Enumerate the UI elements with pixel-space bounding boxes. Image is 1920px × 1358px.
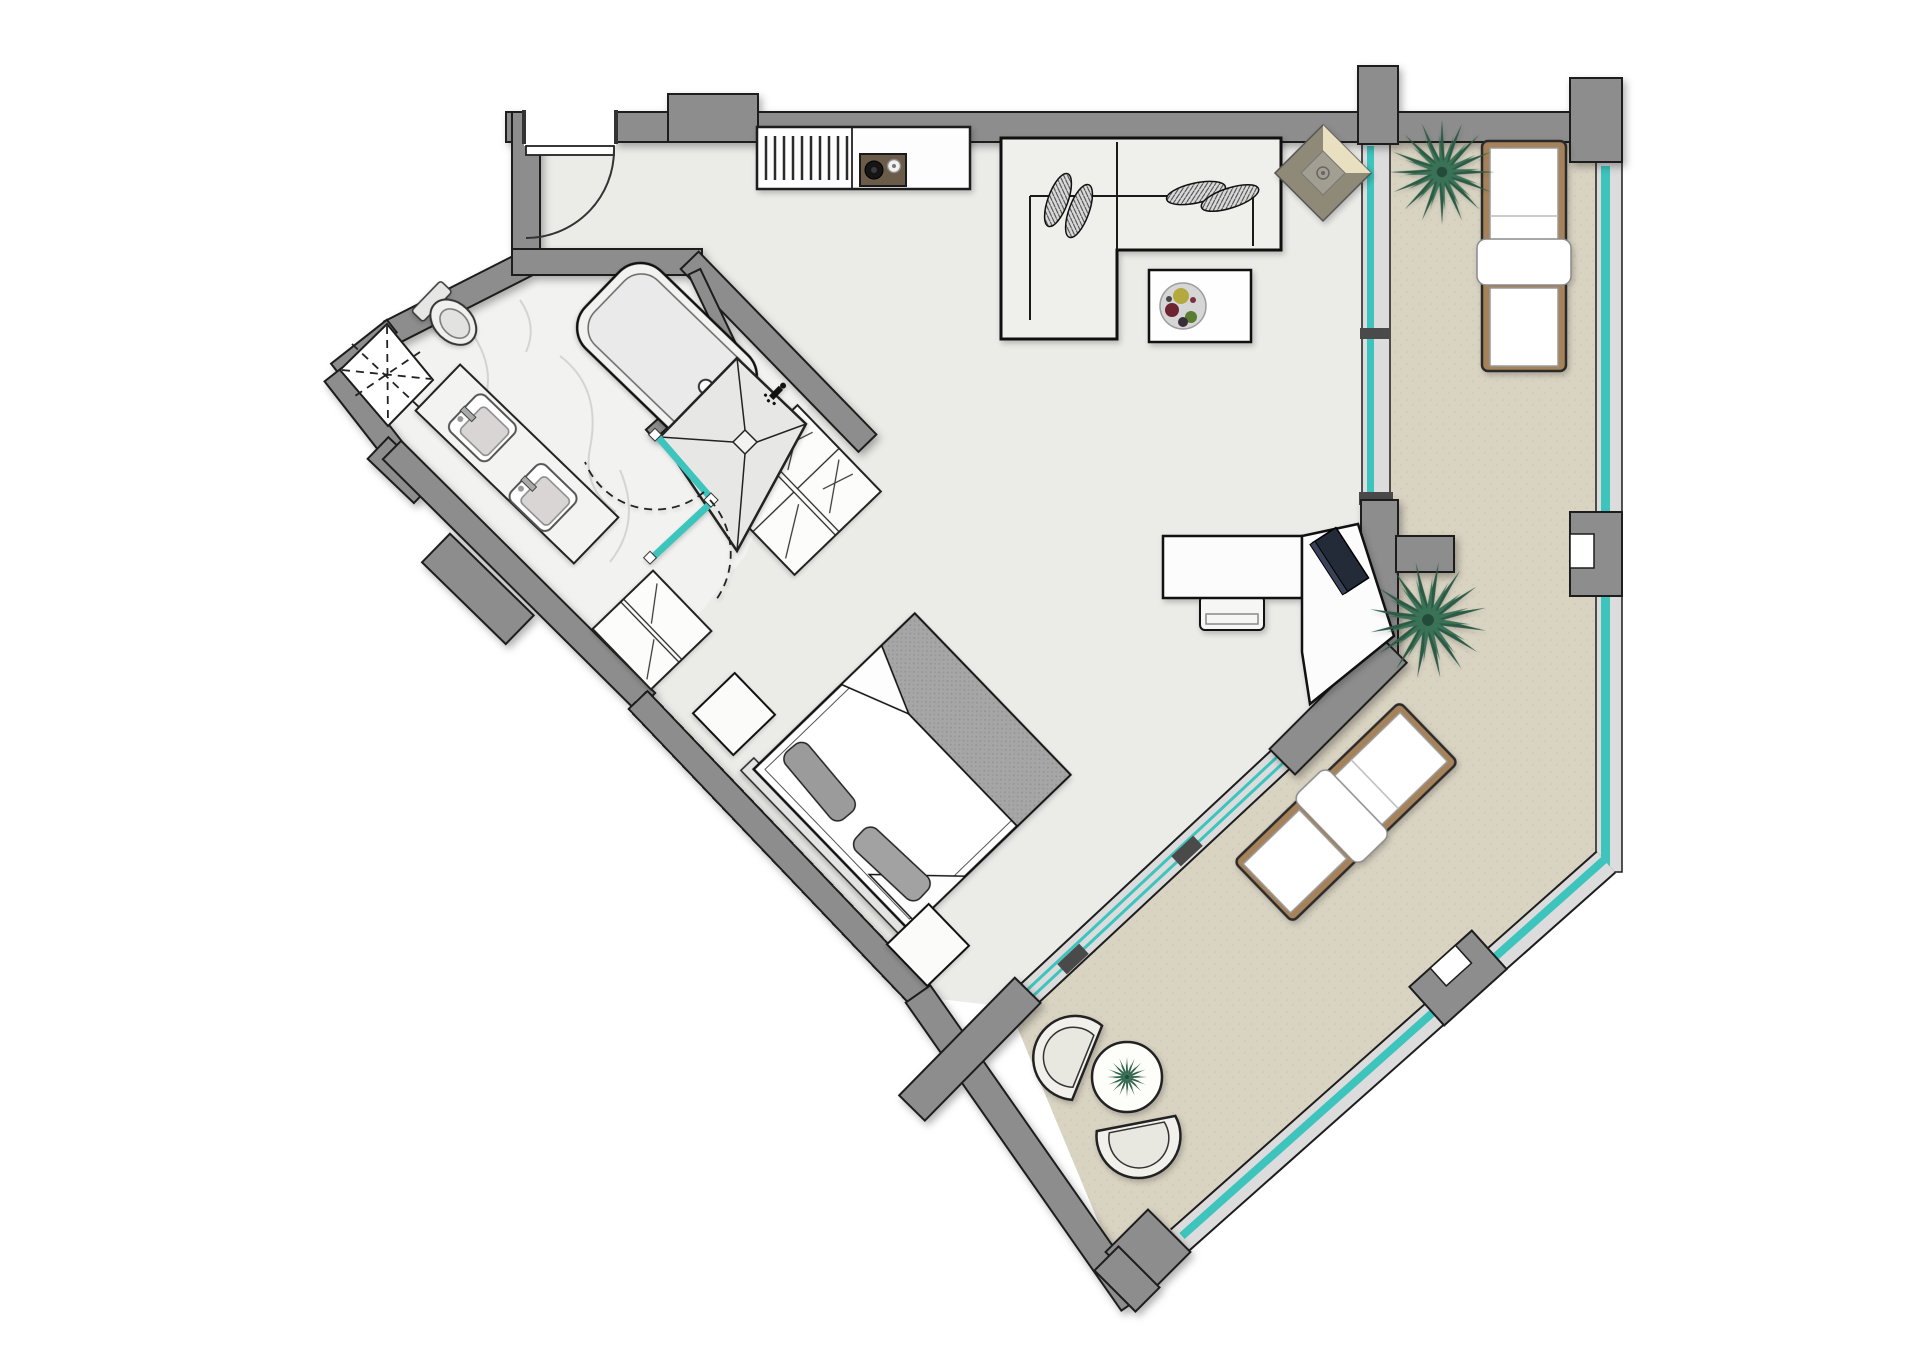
partition-glass-teal	[1367, 146, 1374, 498]
floor-plan-drawing	[0, 0, 1920, 1358]
entry-door-jamb-right	[614, 110, 618, 144]
fruit-cherry	[1165, 303, 1179, 317]
diamond-center-dot	[1321, 171, 1325, 175]
fruit-berry	[1166, 296, 1172, 302]
wall-entry-pillar	[668, 94, 758, 142]
desk-top	[1163, 536, 1302, 598]
cooktop-burner-light-center	[892, 164, 896, 168]
partition-glass-frame	[1362, 140, 1390, 504]
fruit-berry	[1190, 297, 1196, 303]
entry-door-leaf	[526, 146, 614, 155]
wall-mid-pillar	[1358, 66, 1398, 144]
wall-partition-stub	[1396, 536, 1454, 572]
balcony-plant-1	[1390, 120, 1495, 225]
fruit-pear	[1173, 288, 1189, 304]
floor-plan-stage	[0, 0, 1920, 1358]
sun-lounger-1	[1477, 141, 1571, 371]
cooktop-burner-dark-center	[871, 167, 877, 173]
desk-chair	[1200, 596, 1264, 630]
wall-topright-block	[1570, 78, 1622, 162]
entry-door-jamb-left	[522, 110, 526, 144]
partition-glass-mullion	[1360, 328, 1391, 339]
table-plant	[1107, 1057, 1147, 1097]
entry-door-opening	[524, 106, 616, 146]
kitchen-counter	[757, 127, 970, 189]
fruit-grape	[1178, 317, 1188, 327]
coffee-table	[1149, 270, 1251, 342]
wall-bath-ne-horizontal	[512, 249, 702, 275]
right-glazing-column-notch	[1570, 534, 1594, 568]
